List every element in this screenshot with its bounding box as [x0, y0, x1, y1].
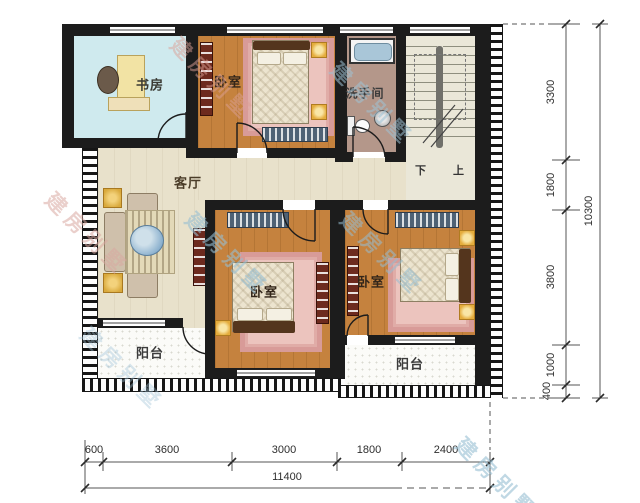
stairs-up-label: 上: [453, 162, 465, 178]
bedroom-top-label: 卧室: [214, 72, 242, 91]
dim-right-2: 3800: [545, 265, 557, 289]
dim-right-0: 3300: [545, 80, 557, 104]
bedroom-middle-label: 卧室: [250, 282, 278, 301]
dim-right-total: 10300: [583, 196, 595, 227]
stairs-down-label: 下: [415, 162, 427, 178]
dim-right-3: 1000: [545, 353, 557, 377]
study-label: 书房: [136, 75, 164, 94]
dim-right-4: 400: [541, 382, 553, 400]
dim-bottom-4: 2400: [434, 444, 458, 456]
linework-layer: [0, 0, 640, 503]
dim-bottom-total: 11400: [272, 471, 302, 483]
floor-plan: 书房 卧室 洗手间 客厅 卧室 卧室 阳台 阳台 下 上 3300 1800 3…: [0, 0, 640, 503]
stair-break-line: [423, 105, 463, 147]
balcony-right-label: 阳台: [396, 354, 424, 373]
dim-bottom-1: 3600: [155, 444, 179, 456]
bathroom-label: 洗手间: [345, 85, 384, 102]
living-room-label: 客厅: [174, 173, 202, 192]
bedroom-right-label: 卧室: [357, 272, 385, 291]
dim-bottom-2: 3000: [272, 444, 296, 456]
balcony-left-label: 阳台: [136, 343, 164, 362]
door-arcs: [158, 112, 388, 354]
dim-bottom-3: 1800: [357, 444, 381, 456]
dim-bottom-0: 600: [85, 444, 103, 456]
dim-right-1: 1800: [545, 173, 557, 197]
